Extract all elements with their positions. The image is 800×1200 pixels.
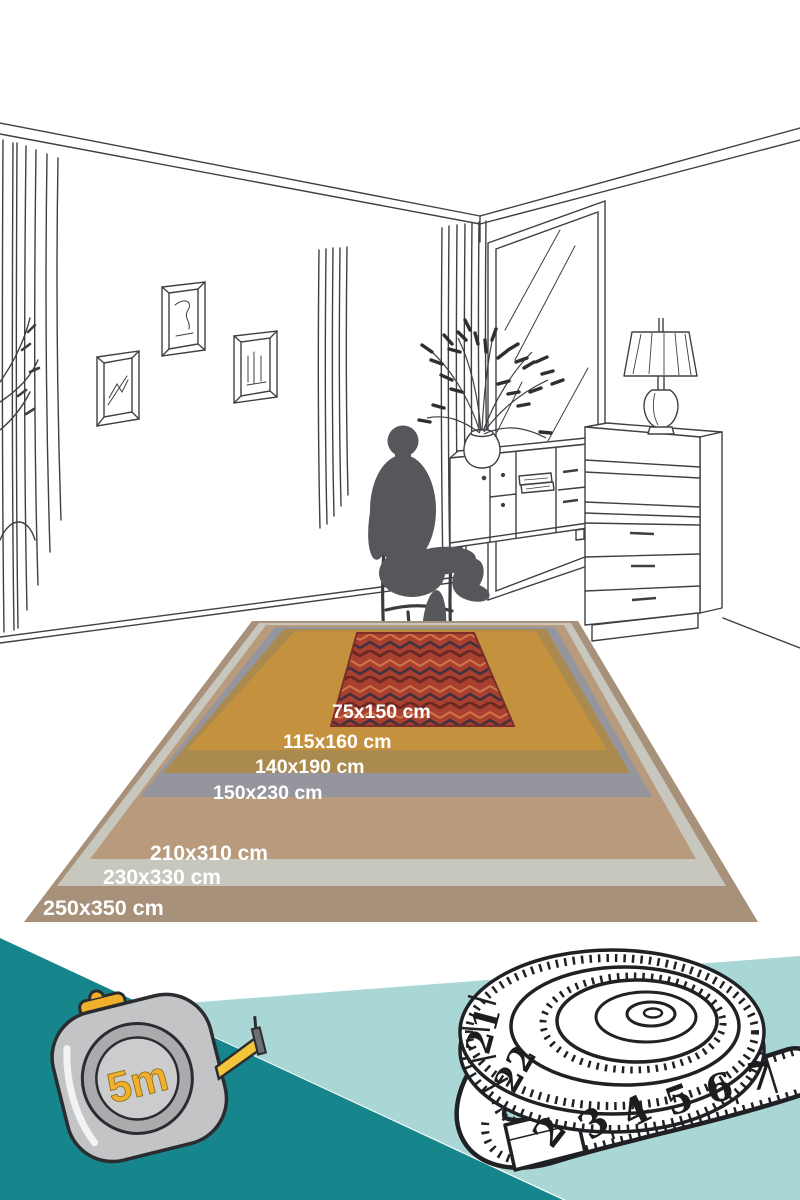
right-wall-base bbox=[723, 618, 800, 648]
rug-size-label: 230x330 cm bbox=[103, 866, 221, 889]
picture-frame bbox=[162, 282, 205, 356]
picture-frame bbox=[97, 351, 139, 426]
poster-illustration: 75x150 cm 115x160 cm 140x190 cm 150x230 … bbox=[0, 0, 800, 1200]
rug-size-guide-poster: 75x150 cm 115x160 cm 140x190 cm 150x230 … bbox=[0, 0, 800, 1200]
rug-size-label: 75x150 cm bbox=[332, 701, 431, 723]
picture-frame bbox=[234, 331, 277, 403]
left-curtain bbox=[2, 140, 61, 632]
left-branch bbox=[0, 318, 39, 540]
rug-stack: 75x150 cm 115x160 cm 140x190 cm 150x230 … bbox=[24, 621, 758, 922]
middle-curtain bbox=[318, 247, 348, 528]
rug-size-label: 140x190 cm bbox=[255, 756, 365, 778]
rug-size-label: 250x350 cm bbox=[43, 896, 164, 920]
rug-size-label: 150x230 cm bbox=[213, 782, 323, 804]
footer: 5m 21 22 2 bbox=[0, 938, 800, 1200]
rug-size-label: 210x310 cm bbox=[150, 842, 268, 865]
table-lamp bbox=[624, 318, 697, 434]
books bbox=[519, 473, 554, 493]
shelf-drawer-unit bbox=[585, 423, 722, 641]
plant-leaves bbox=[419, 320, 563, 433]
ceiling-line bbox=[0, 123, 800, 242]
rug-size-label: 115x160 cm bbox=[283, 731, 391, 753]
